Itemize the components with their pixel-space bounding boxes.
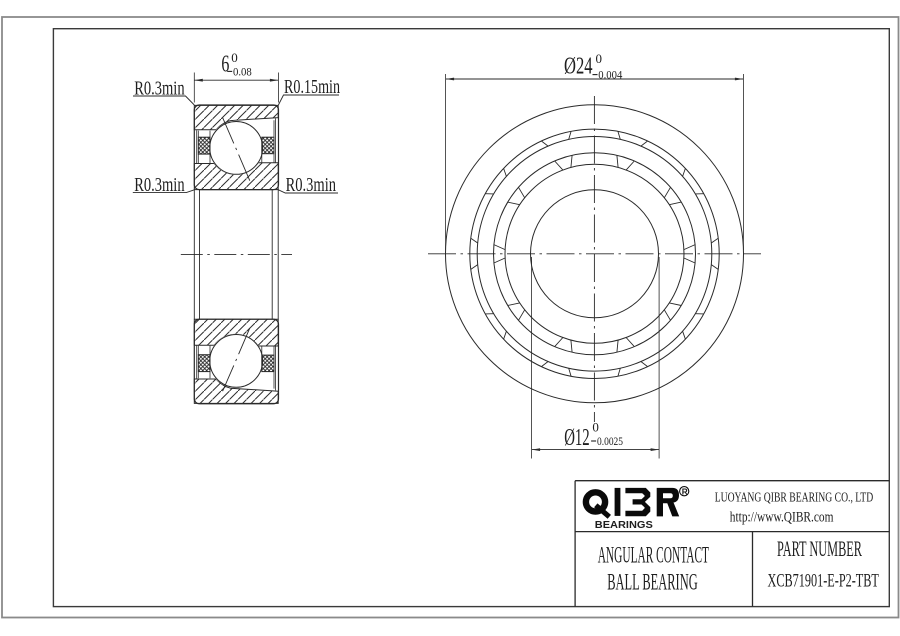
svg-text:R: R xyxy=(682,487,688,496)
svg-text:ANGULAR CONTACT: ANGULAR CONTACT xyxy=(598,543,709,569)
svg-text:BALL BEARING: BALL BEARING xyxy=(607,569,698,595)
svg-text:0: 0 xyxy=(231,50,238,65)
svg-text:0.0025: 0.0025 xyxy=(597,434,623,448)
svg-text:LUOYANG QIBR BEARING CO., LTD: LUOYANG QIBR BEARING CO., LTD xyxy=(715,490,874,505)
svg-text:6: 6 xyxy=(221,52,229,78)
svg-text:BEARINGS: BEARINGS xyxy=(595,520,653,531)
svg-text:Ø12: Ø12 xyxy=(564,425,590,451)
svg-text:Ø24: Ø24 xyxy=(564,53,593,79)
svg-text:0: 0 xyxy=(592,420,599,435)
svg-text:0.08: 0.08 xyxy=(233,64,252,78)
svg-text:0.004: 0.004 xyxy=(598,68,622,82)
svg-text:0: 0 xyxy=(596,51,603,66)
svg-text:http://www.QIBR.com: http://www.QIBR.com xyxy=(730,510,834,526)
svg-text:R0.15min: R0.15min xyxy=(284,76,340,98)
svg-text:XCB71901-E-P2-TBT: XCB71901-E-P2-TBT xyxy=(768,570,880,591)
svg-text:PART NUMBER: PART NUMBER xyxy=(777,536,862,561)
